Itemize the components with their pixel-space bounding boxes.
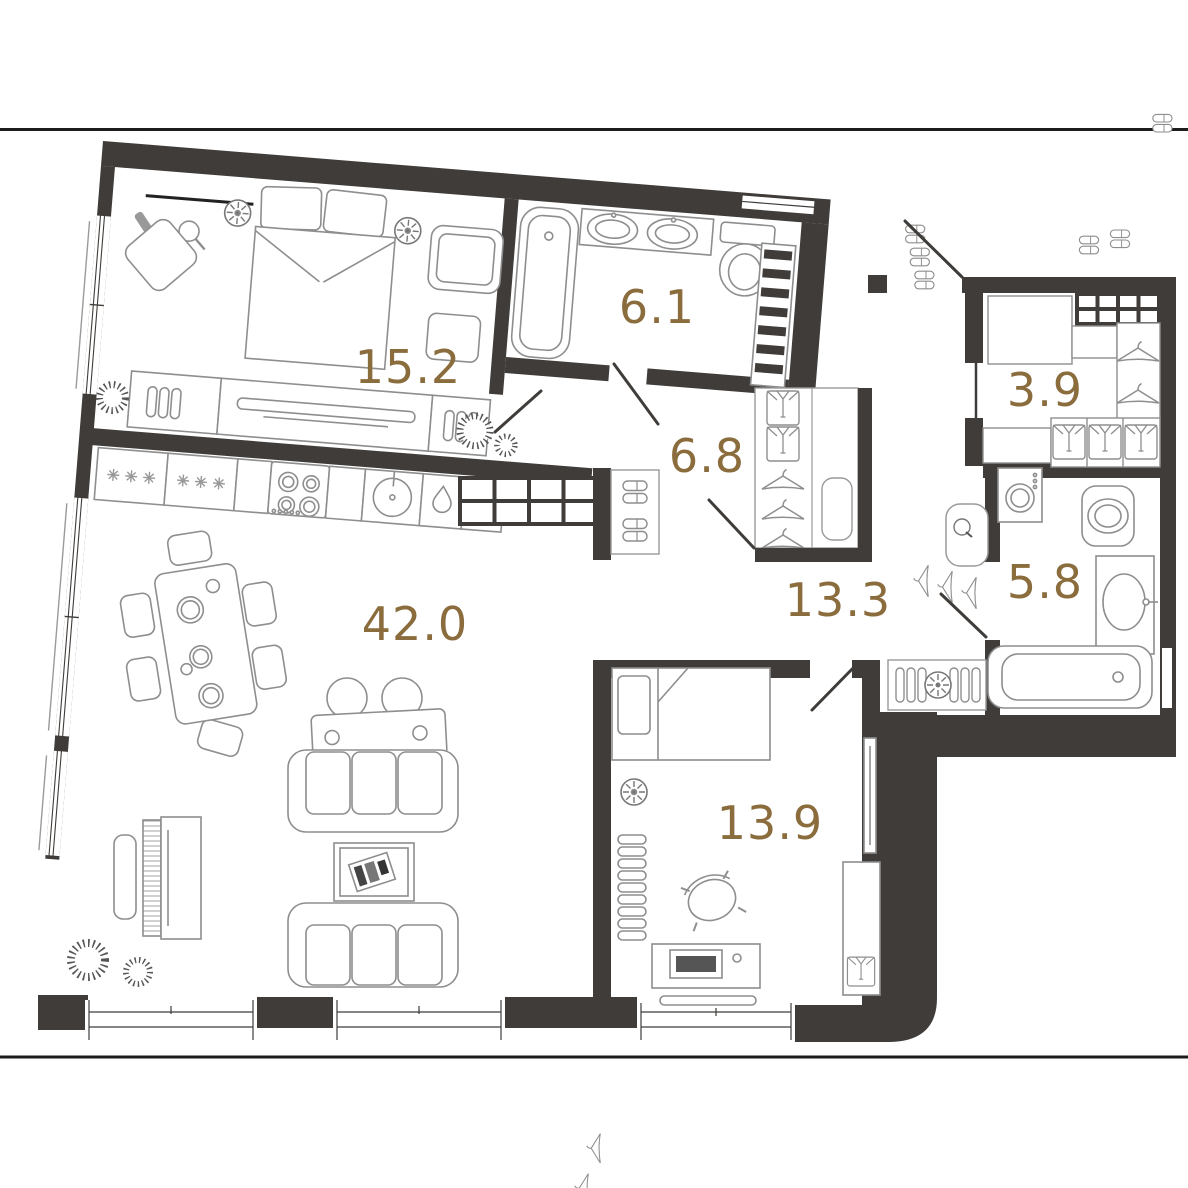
washing-machine-icon (998, 468, 1042, 522)
ironing-board-icon (822, 478, 852, 540)
pouf-icon (327, 678, 367, 718)
bath-window (1162, 648, 1172, 708)
shelf-grid-icon (1077, 294, 1159, 324)
room-area-label-bathroom-second: 5.8 (1007, 555, 1083, 609)
desk-icon (652, 944, 760, 1005)
bathtub-icon (988, 646, 1152, 708)
floor-plan-page: 15.2 6.1 6.8 3.9 5.8 13.3 42.0 13.9 (0, 0, 1188, 1188)
window-bedroom-second (637, 1003, 795, 1040)
toilet-icon (1082, 486, 1134, 546)
wall (593, 468, 611, 560)
radiator-vent-icon (888, 660, 986, 710)
sofa-icon (288, 750, 458, 832)
floor-plan: 15.2 6.1 6.8 3.9 5.8 13.3 42.0 13.9 (0, 0, 1188, 1188)
sink-icon (1096, 556, 1158, 654)
bathtub-icon (510, 206, 580, 360)
fan-icon (621, 779, 647, 805)
hall-shoebox-icon (611, 470, 659, 554)
tv-icon (864, 738, 876, 853)
armchair-icon (427, 225, 504, 295)
single-bed-icon (612, 668, 770, 760)
grid-cabinet-icon (460, 478, 598, 524)
plant-icon (126, 960, 150, 984)
room-area-label-bedroom-main: 15.2 (355, 340, 461, 394)
room-area-label-wardrobe: 3.9 (1007, 363, 1083, 417)
stove-icon (268, 462, 330, 518)
room-area-label-hallway: 13.3 (785, 573, 891, 627)
room-area-label-living: 42.0 (362, 597, 468, 651)
radiator-icon (618, 835, 646, 940)
window-icon (333, 1000, 505, 1040)
bench-icon (114, 835, 136, 919)
entrance-wall-stub (868, 275, 887, 293)
boiler-icon (946, 504, 988, 566)
room-area-label-bathroom-ensuite: 6.1 (619, 280, 695, 334)
room-area-label-hall-closet: 6.8 (669, 429, 745, 483)
room-area-label-bedroom-second: 13.9 (717, 796, 823, 850)
window-icon (85, 1000, 257, 1040)
kitchen-sink-icon (361, 469, 423, 525)
sofa-icon (288, 903, 458, 987)
plant-icon (71, 943, 105, 977)
coffee-table-icon (334, 843, 414, 901)
plant-icon (459, 415, 491, 447)
